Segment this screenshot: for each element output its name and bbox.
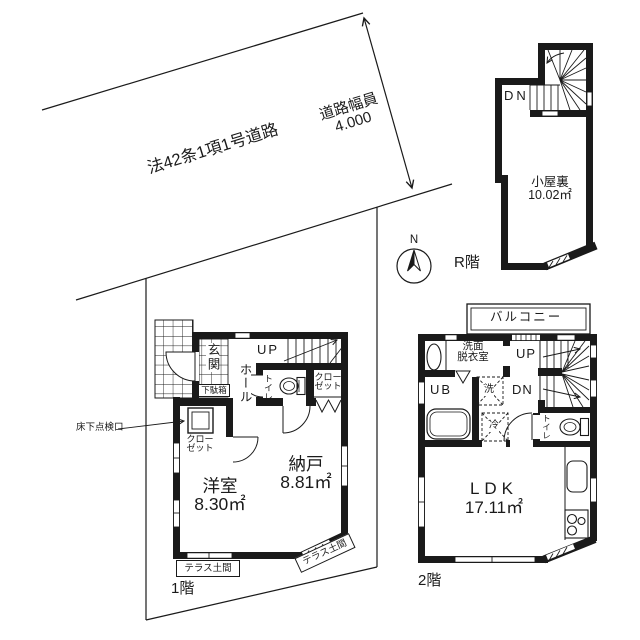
f2-stove-icon bbox=[565, 510, 588, 538]
f1-shoebox-label: 下駄箱 bbox=[198, 384, 230, 397]
compass-north-label: N bbox=[408, 234, 420, 246]
f2-washroom-label: 洗面 脱衣室 bbox=[448, 341, 498, 363]
f2-fridge-label: 冷 bbox=[489, 421, 499, 432]
f2-balcony-label: バルコニー bbox=[490, 311, 562, 324]
f2-kitchen-sink-icon bbox=[567, 461, 587, 492]
roof-floor-plan bbox=[495, 43, 596, 270]
f1-closet-right-line2: ゼット bbox=[312, 382, 344, 391]
f1-stairs bbox=[284, 339, 347, 363]
floor2-plan bbox=[418, 304, 597, 563]
f1-stair-direction-arrow bbox=[284, 340, 337, 361]
f1-toilet-label: トイレ bbox=[263, 374, 272, 401]
f1-closet-left-line2: ゼット bbox=[183, 444, 217, 453]
f1-room2-label: 納戸 bbox=[268, 455, 344, 473]
f1-toilet-icon bbox=[280, 378, 305, 395]
f1-room2-area: 8.81㎡ bbox=[263, 473, 349, 491]
f2-toilet-label: トイレ bbox=[542, 414, 551, 440]
rf-dn-label: DN bbox=[504, 89, 529, 103]
rf-room-area: 10.02㎡ bbox=[514, 189, 586, 202]
f2-balcony-door-ticks bbox=[512, 335, 540, 341]
f1-closet-right-label: クロー ゼット bbox=[312, 373, 344, 392]
f2-washer-label: 洗 bbox=[484, 385, 494, 396]
floorplan-page: 法42条1項1号道路 道路幅員 4.000 N DN 小屋裏 10.02㎡ R階… bbox=[0, 0, 640, 640]
rf-walls bbox=[495, 43, 593, 270]
f2-bathtub-icon bbox=[427, 409, 470, 439]
f1-closet-square-icon bbox=[188, 408, 213, 433]
f1-room1-label: 洋室 bbox=[182, 477, 258, 495]
f2-dn-label: DN bbox=[512, 383, 533, 397]
rf-stair-window bbox=[542, 111, 558, 116]
f2-washroom-line2: 脱衣室 bbox=[448, 352, 498, 363]
f2-room-label: LDK bbox=[452, 480, 536, 498]
floor1-plan bbox=[118, 320, 348, 559]
f1-hall-label: ホール bbox=[238, 363, 251, 404]
f1-entrance-label: 玄関 bbox=[206, 343, 219, 372]
f2-sink-icon bbox=[427, 344, 441, 370]
f1-up-label: UP bbox=[257, 343, 279, 357]
rf-right-window bbox=[587, 92, 592, 106]
road-boundary-lines bbox=[42, 13, 452, 300]
f1-closet-bifold-icon bbox=[314, 397, 341, 412]
f1-terrace-left-label: テラス土間 bbox=[176, 560, 240, 577]
f1-inspection-label: 床下点検口 bbox=[76, 423, 124, 433]
f2-room-area: 17.11㎡ bbox=[447, 499, 541, 517]
f2-up-label: UP bbox=[516, 347, 536, 361]
rf-floor-label: R階 bbox=[454, 255, 480, 271]
f2-floor-label: 2階 bbox=[418, 573, 441, 589]
f1-floor-label: 1階 bbox=[171, 581, 194, 597]
f2-walls bbox=[418, 334, 597, 563]
f2-toilet-icon bbox=[560, 419, 589, 436]
f1-closet-left-label: クロー ゼット bbox=[183, 435, 217, 454]
f2-ub-label: UB bbox=[430, 383, 452, 397]
f1-room1-area: 8.30㎡ bbox=[176, 495, 264, 513]
compass-icon bbox=[397, 249, 431, 283]
